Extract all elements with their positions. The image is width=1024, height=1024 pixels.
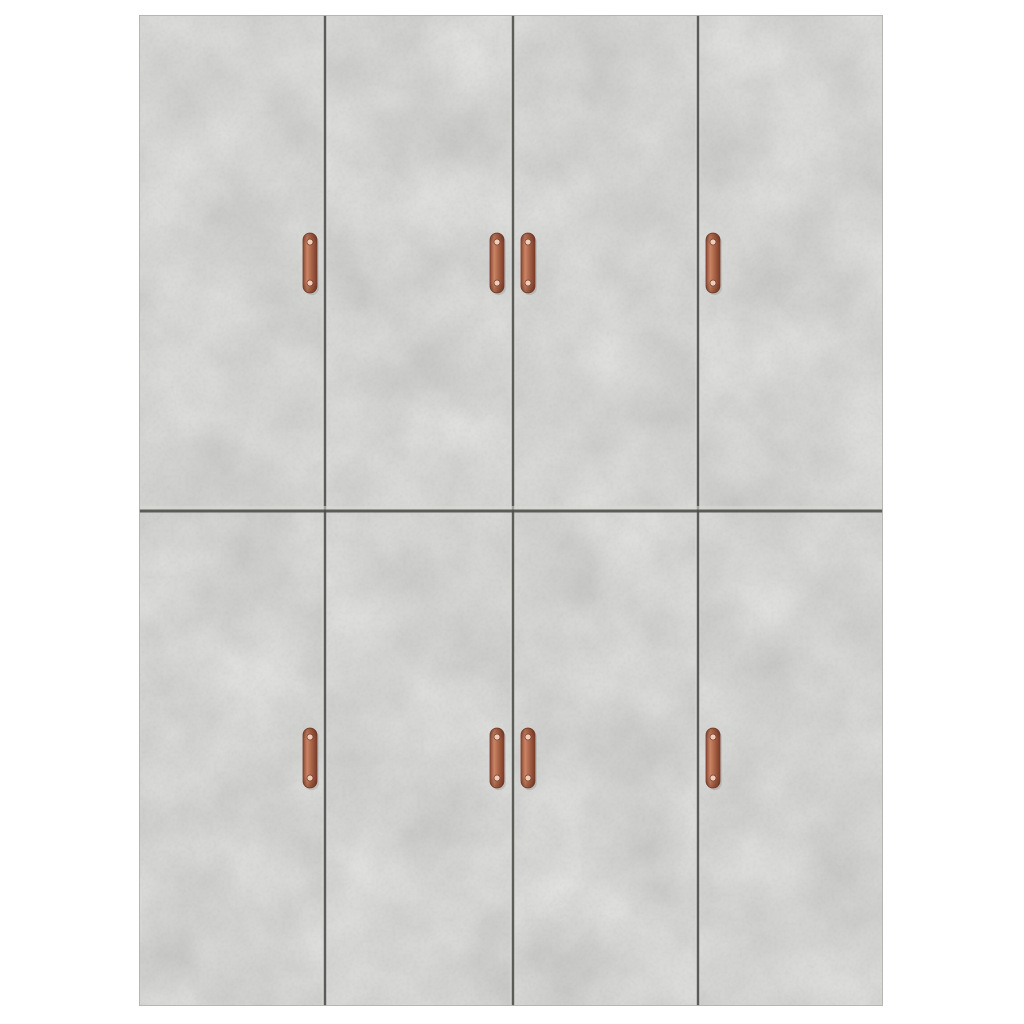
- door-bottom-2: [325, 511, 513, 1006]
- door-bottom-1-handle: [303, 728, 319, 790]
- handle-screw-top: [307, 734, 313, 740]
- handle-screw-top: [525, 239, 531, 245]
- door-top-4-handle: [706, 233, 722, 295]
- handle-screw-bottom: [525, 280, 531, 286]
- door-top-1: [139, 15, 325, 511]
- door-bottom-4-handle: [706, 728, 722, 790]
- door-top-2-handle: [490, 233, 506, 295]
- handle-screw-bottom: [710, 280, 716, 286]
- handle-screw-top: [710, 734, 716, 740]
- horizontal-seam: [139, 510, 883, 513]
- door-bottom-2-handle: [490, 728, 506, 790]
- handle-screw-top: [307, 239, 313, 245]
- door-bottom-3-handle: [521, 728, 537, 790]
- handle-screw-bottom: [494, 775, 500, 781]
- door-top-2: [325, 15, 513, 511]
- handle-screw-top: [494, 734, 500, 740]
- handle-screw-bottom: [710, 775, 716, 781]
- product-photo-background: [0, 0, 1024, 1024]
- handle-screw-bottom: [307, 775, 313, 781]
- wardrobe-svg: [139, 15, 883, 1006]
- handle-screw-top: [494, 239, 500, 245]
- handle-screw-bottom: [307, 280, 313, 286]
- handle-screw-top: [710, 239, 716, 245]
- door-top-4: [698, 15, 883, 511]
- handle-screw-bottom: [525, 775, 531, 781]
- handle-screw-bottom: [494, 280, 500, 286]
- horizontal-seam-highlight: [139, 506, 883, 510]
- handle-screw-top: [525, 734, 531, 740]
- door-bottom-1: [139, 511, 325, 1006]
- door-top-3: [513, 15, 698, 511]
- wardrobe: [139, 15, 883, 1006]
- door-top-3-handle: [521, 233, 537, 295]
- door-top-1-handle: [303, 233, 319, 295]
- door-bottom-4: [698, 511, 883, 1006]
- door-bottom-3: [513, 511, 698, 1006]
